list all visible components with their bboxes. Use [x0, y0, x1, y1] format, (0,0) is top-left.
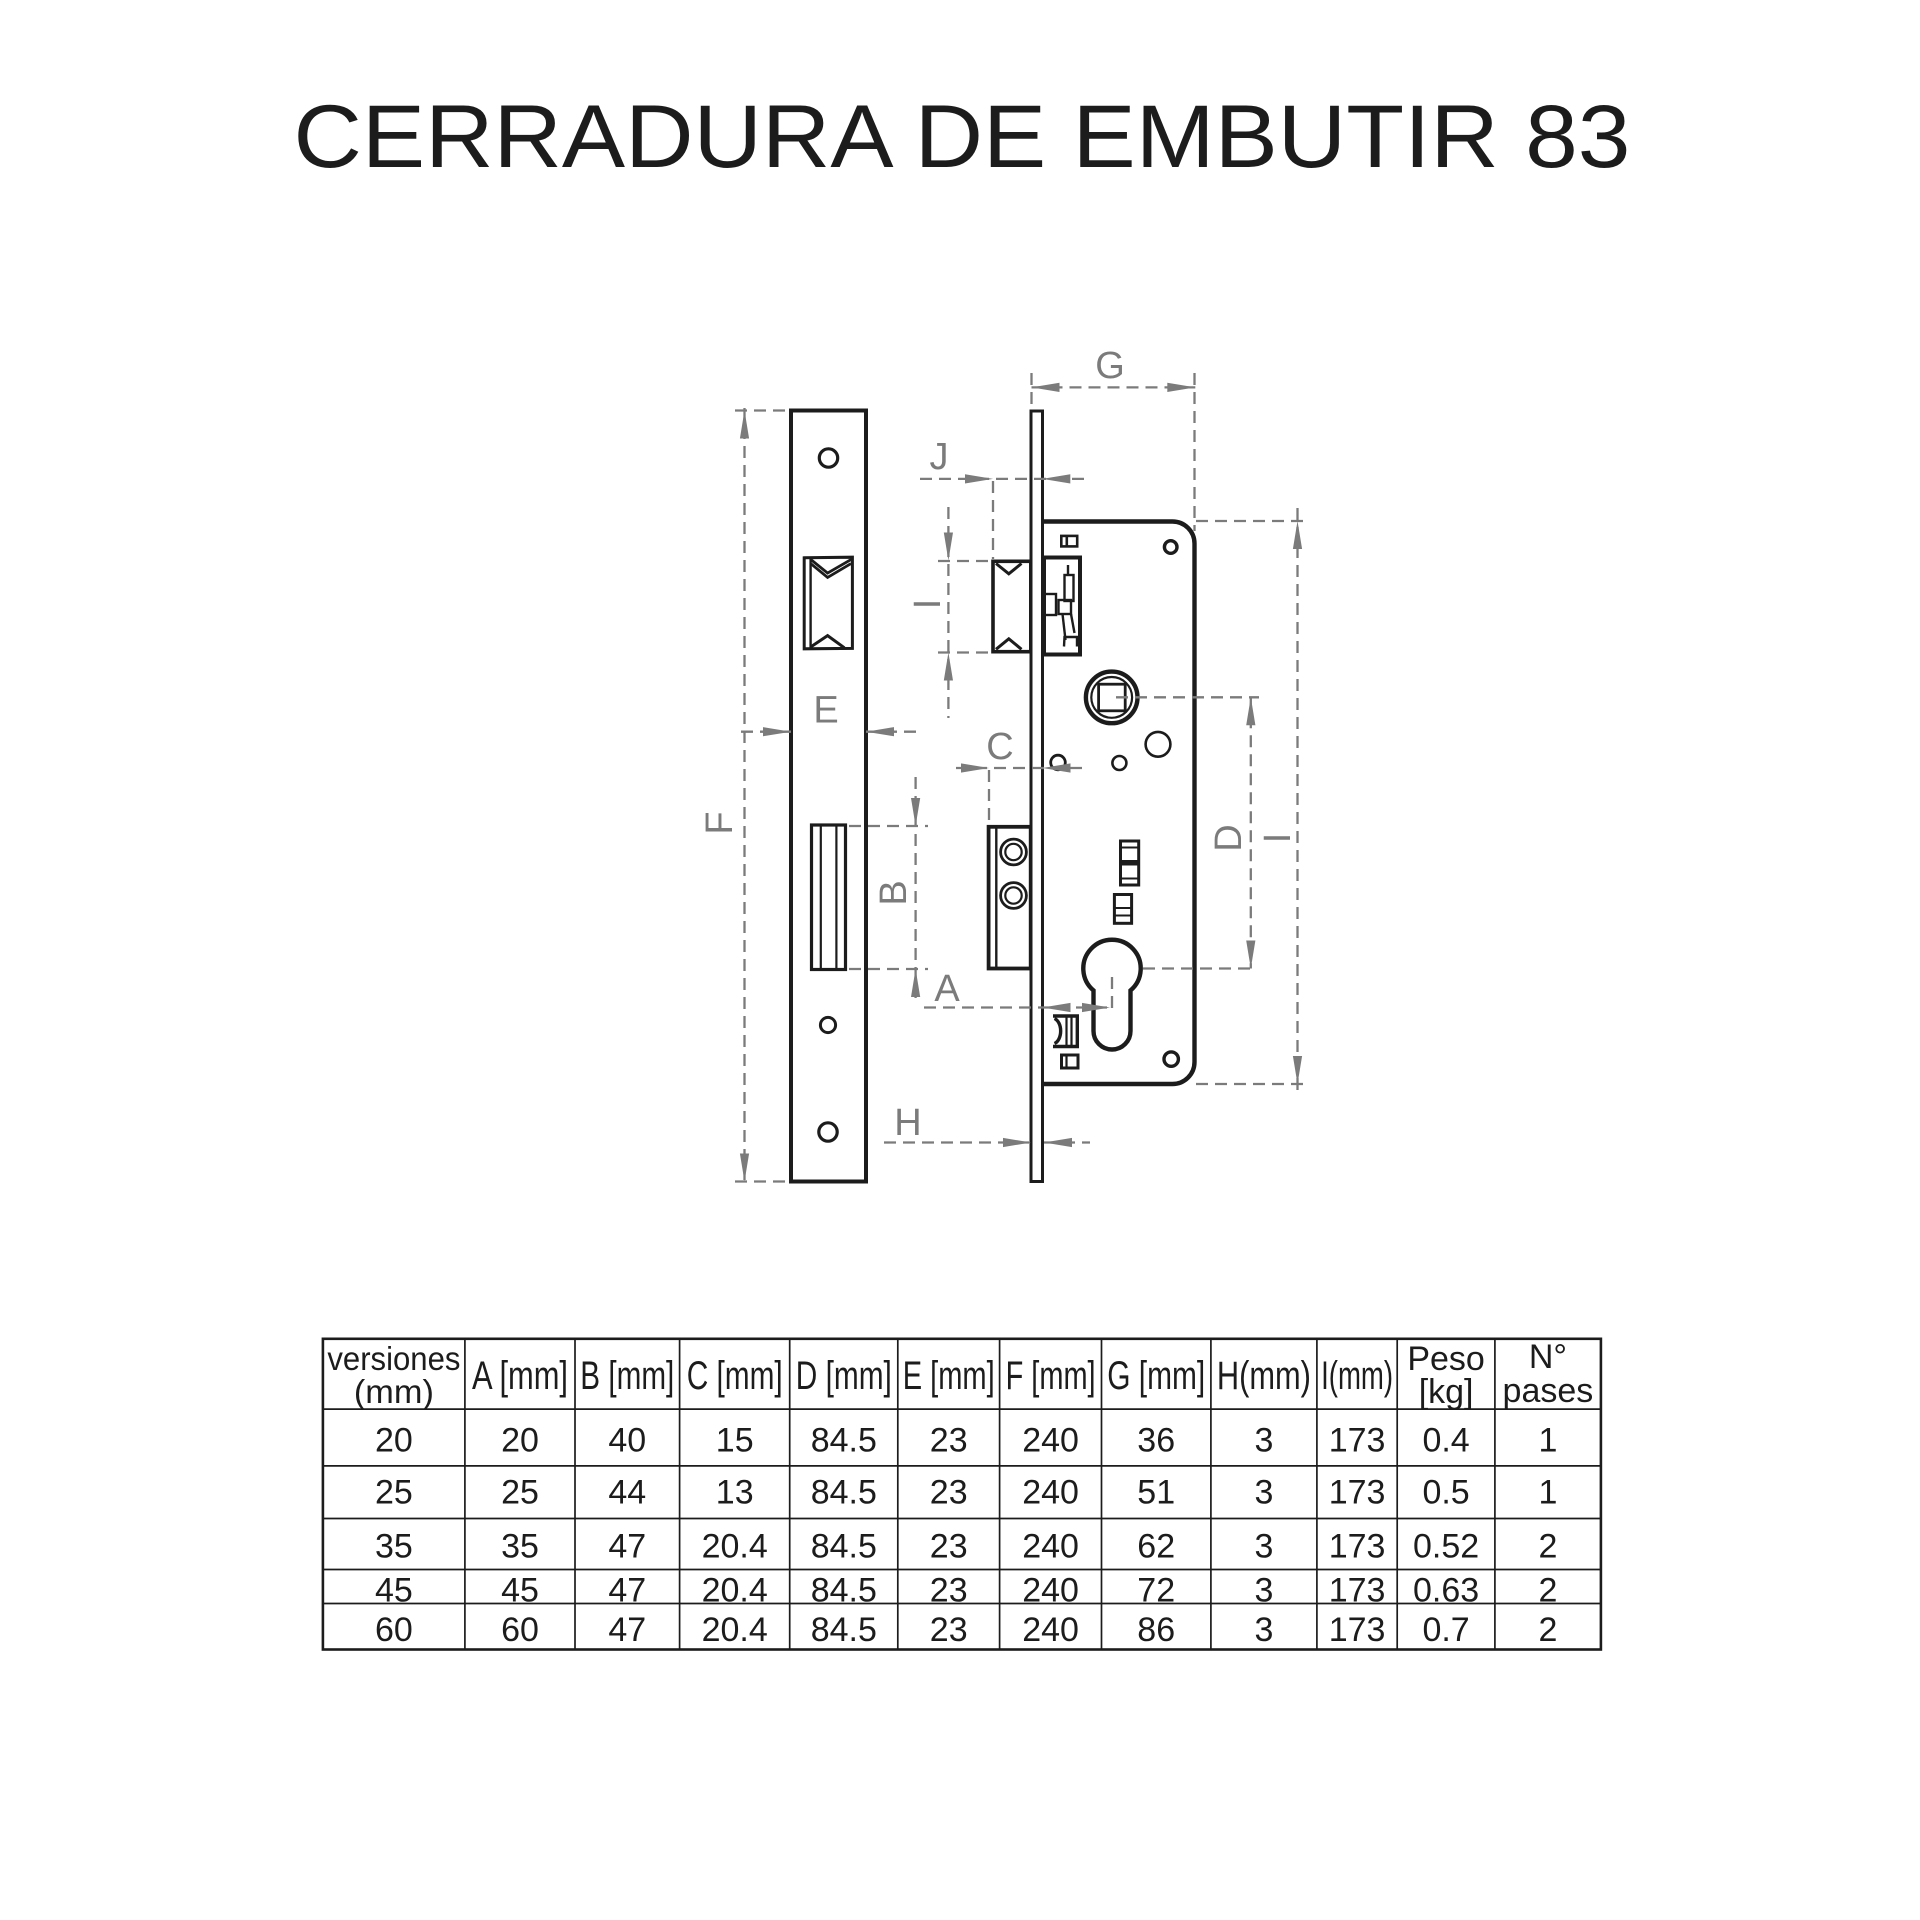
svg-text:62: 62	[1137, 1528, 1175, 1566]
svg-text:D: D	[1208, 824, 1250, 851]
svg-text:20: 20	[375, 1422, 413, 1460]
svg-text:173: 173	[1329, 1572, 1386, 1610]
svg-text:45: 45	[501, 1572, 539, 1610]
svg-text:G [mm]: G [mm]	[1107, 1354, 1205, 1398]
svg-text:240: 240	[1022, 1422, 1079, 1460]
svg-text:0.63: 0.63	[1413, 1572, 1479, 1610]
svg-text:F: F	[699, 811, 741, 834]
svg-text:B: B	[873, 880, 915, 905]
svg-text:60: 60	[375, 1611, 413, 1649]
svg-text:3: 3	[1254, 1528, 1273, 1566]
svg-text:I: I	[1257, 833, 1299, 844]
svg-text:[kg]: [kg]	[1419, 1373, 1474, 1411]
svg-text:25: 25	[501, 1474, 539, 1512]
svg-text:I: I	[907, 599, 949, 610]
svg-text:(mm): (mm)	[354, 1373, 434, 1410]
svg-text:J: J	[930, 436, 949, 478]
svg-text:D [mm]: D [mm]	[796, 1354, 892, 1398]
svg-text:23: 23	[930, 1611, 968, 1649]
svg-text:3: 3	[1254, 1474, 1273, 1512]
svg-text:0.5: 0.5	[1422, 1474, 1469, 1512]
svg-text:47: 47	[608, 1528, 646, 1566]
svg-text:36: 36	[1137, 1422, 1175, 1460]
svg-text:3: 3	[1254, 1572, 1273, 1610]
svg-text:25: 25	[375, 1474, 413, 1512]
svg-text:84.5: 84.5	[811, 1528, 877, 1566]
svg-text:20: 20	[501, 1422, 539, 1460]
svg-text:H(mm): H(mm)	[1217, 1354, 1311, 1398]
svg-text:173: 173	[1329, 1422, 1386, 1460]
svg-text:0.4: 0.4	[1422, 1422, 1469, 1460]
svg-text:1: 1	[1538, 1422, 1557, 1460]
svg-text:35: 35	[375, 1528, 413, 1566]
svg-text:3: 3	[1254, 1611, 1273, 1649]
svg-text:versiones: versiones	[327, 1340, 460, 1377]
svg-text:23: 23	[930, 1572, 968, 1610]
svg-text:84.5: 84.5	[811, 1572, 877, 1610]
svg-text:23: 23	[930, 1422, 968, 1460]
svg-text:2: 2	[1538, 1572, 1557, 1610]
svg-text:84.5: 84.5	[811, 1611, 877, 1649]
svg-text:47: 47	[608, 1572, 646, 1610]
svg-text:E: E	[813, 690, 838, 732]
svg-text:E [mm]: E [mm]	[903, 1354, 995, 1398]
svg-text:86: 86	[1137, 1611, 1175, 1649]
svg-text:40: 40	[608, 1422, 646, 1460]
svg-text:20.4: 20.4	[702, 1528, 768, 1566]
svg-text:173: 173	[1329, 1474, 1386, 1512]
svg-text:3: 3	[1254, 1422, 1273, 1460]
svg-text:N°: N°	[1529, 1338, 1567, 1376]
svg-text:173: 173	[1329, 1611, 1386, 1649]
svg-text:2: 2	[1538, 1611, 1557, 1649]
svg-text:173: 173	[1329, 1528, 1386, 1566]
svg-text:I(mm): I(mm)	[1321, 1354, 1393, 1398]
svg-text:0.7: 0.7	[1422, 1611, 1469, 1649]
svg-text:20.4: 20.4	[702, 1611, 768, 1649]
svg-text:C [mm]: C [mm]	[687, 1354, 783, 1398]
svg-text:84.5: 84.5	[811, 1422, 877, 1460]
svg-text:23: 23	[930, 1528, 968, 1566]
svg-text:240: 240	[1022, 1572, 1079, 1610]
svg-text:G: G	[1095, 345, 1125, 387]
svg-text:A [mm]: A [mm]	[472, 1354, 568, 1398]
svg-text:2: 2	[1538, 1528, 1557, 1566]
svg-text:72: 72	[1137, 1572, 1175, 1610]
svg-text:H: H	[894, 1102, 921, 1144]
svg-text:47: 47	[608, 1611, 646, 1649]
svg-text:84.5: 84.5	[811, 1474, 877, 1512]
svg-text:1: 1	[1538, 1474, 1557, 1512]
svg-text:20.4: 20.4	[702, 1572, 768, 1610]
svg-text:0.52: 0.52	[1413, 1528, 1479, 1566]
svg-text:240: 240	[1022, 1528, 1079, 1566]
svg-text:240: 240	[1022, 1611, 1079, 1649]
svg-text:45: 45	[375, 1572, 413, 1610]
svg-text:15: 15	[716, 1422, 754, 1460]
svg-text:23: 23	[930, 1474, 968, 1512]
svg-text:60: 60	[501, 1611, 539, 1649]
svg-text:A: A	[934, 968, 960, 1010]
svg-text:13: 13	[716, 1474, 754, 1512]
svg-text:F [mm]: F [mm]	[1006, 1354, 1096, 1398]
svg-text:240: 240	[1022, 1474, 1079, 1512]
svg-text:35: 35	[501, 1528, 539, 1566]
svg-text:CERRADURA DE EMBUTIR 83: CERRADURA DE EMBUTIR 83	[294, 86, 1631, 186]
svg-text:C: C	[986, 726, 1013, 768]
svg-text:44: 44	[608, 1474, 646, 1512]
svg-text:pases: pases	[1503, 1372, 1594, 1410]
svg-text:B [mm]: B [mm]	[580, 1354, 674, 1398]
svg-text:51: 51	[1137, 1474, 1175, 1512]
